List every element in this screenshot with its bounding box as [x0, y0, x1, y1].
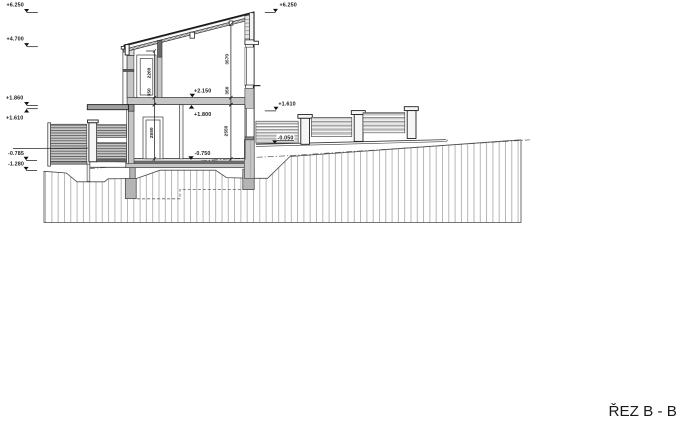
svg-text:+2.150: +2.150	[194, 88, 211, 94]
svg-text:+1.610: +1.610	[6, 116, 23, 122]
svg-text:-0.050: -0.050	[278, 136, 294, 142]
svg-text:2550: 2550	[224, 125, 230, 136]
svg-text:-0.750: -0.750	[195, 151, 211, 157]
svg-text:+6.250: +6.250	[7, 2, 24, 8]
svg-text:-0.785: -0.785	[8, 151, 24, 157]
svg-text:350: 350	[146, 88, 152, 96]
svg-text:2550: 2550	[149, 127, 155, 138]
svg-text:+6.250: +6.250	[280, 2, 297, 8]
svg-text:+4.700: +4.700	[7, 36, 24, 42]
svg-text:+1.800: +1.800	[194, 112, 211, 118]
svg-text:+1.610: +1.610	[278, 101, 295, 107]
svg-text:-1.280: -1.280	[8, 161, 24, 167]
svg-text:350: 350	[224, 86, 230, 94]
svg-text:+1.860: +1.860	[6, 96, 23, 102]
svg-text:2260: 2260	[146, 67, 152, 78]
svg-text:3570: 3570	[224, 54, 230, 65]
svg-text:ŘEZ B - B: ŘEZ B - B	[609, 403, 677, 420]
